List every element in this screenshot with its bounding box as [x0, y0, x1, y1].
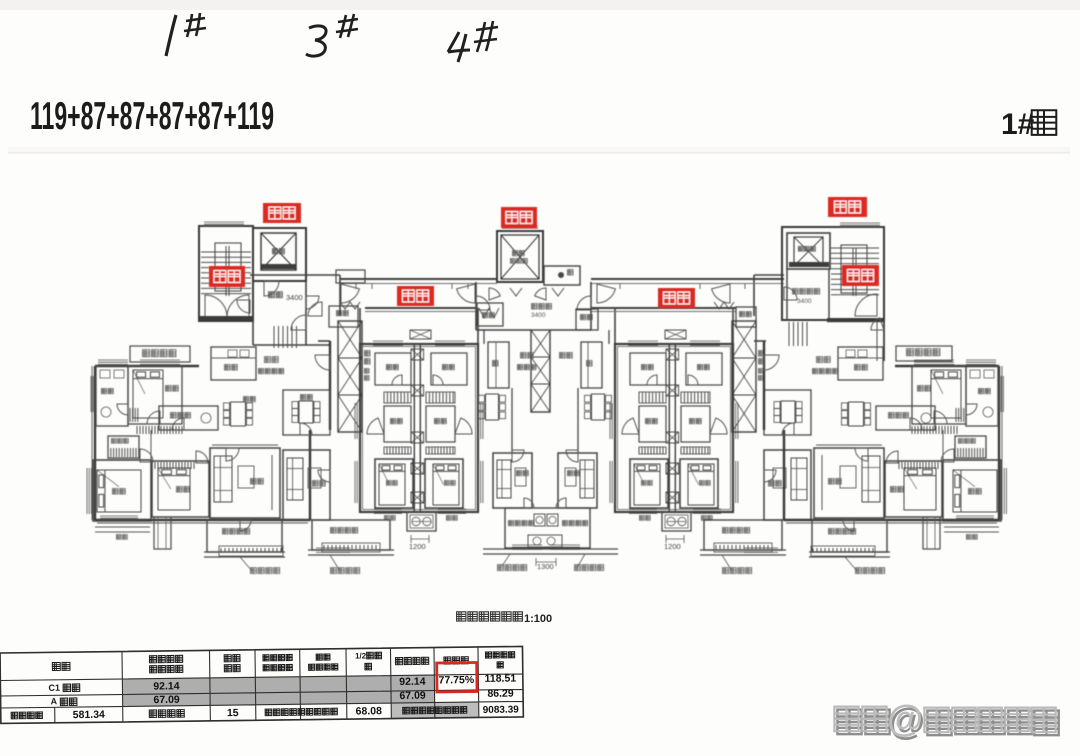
svg-text:3400: 3400 [531, 312, 546, 319]
svg-text:118.51: 118.51 [485, 673, 517, 685]
svg-text:1:100: 1:100 [524, 613, 552, 625]
svg-text:67.09: 67.09 [399, 690, 426, 702]
svg-text:9083.39: 9083.39 [483, 704, 520, 715]
svg-text:3400: 3400 [797, 298, 812, 305]
svg-text:119+87+87+87+87+119: 119+87+87+87+87+119 [30, 95, 274, 138]
svg-text:1200: 1200 [409, 542, 426, 551]
svg-text:1/2: 1/2 [355, 651, 367, 660]
svg-text:67.09: 67.09 [153, 694, 180, 706]
svg-text:15: 15 [227, 707, 239, 719]
svg-text:C1: C1 [48, 683, 60, 693]
svg-text:68.08: 68.08 [356, 705, 383, 717]
svg-text:86.29: 86.29 [487, 688, 514, 700]
svg-text:A: A [51, 696, 58, 706]
svg-text:1300: 1300 [537, 562, 554, 571]
svg-text:77.75%: 77.75% [438, 674, 474, 686]
svg-text:3400: 3400 [286, 293, 303, 302]
svg-text:1#: 1# [1001, 108, 1035, 141]
svg-text:92.14: 92.14 [153, 680, 180, 692]
svg-text:@: @ [887, 698, 923, 739]
svg-text:581.34: 581.34 [73, 709, 105, 721]
svg-text:92.14: 92.14 [399, 676, 426, 688]
svg-text:1200: 1200 [664, 542, 681, 551]
